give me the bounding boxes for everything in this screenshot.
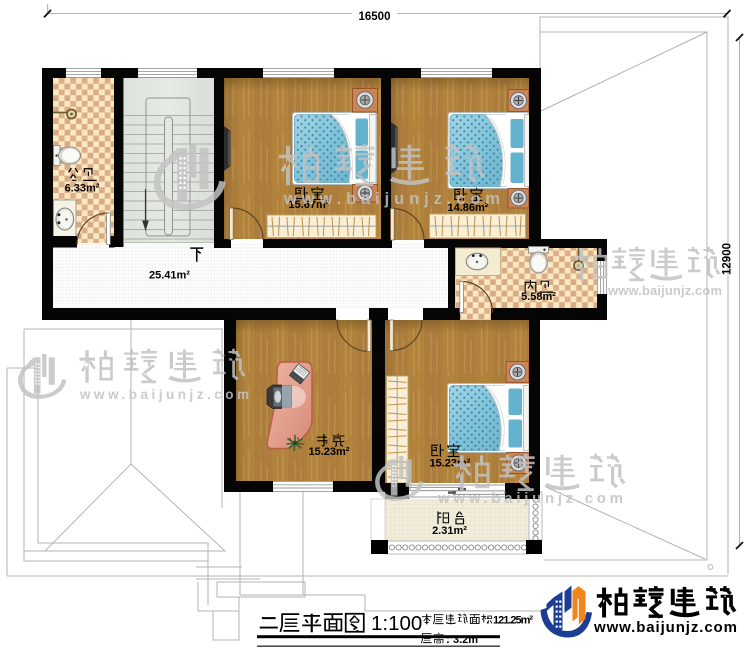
svg-text:www.baijunjz.com: www.baijunjz.com xyxy=(593,619,738,636)
svg-text:2.31m²: 2.31m² xyxy=(432,525,467,537)
svg-text:121.25m²: 121.25m² xyxy=(493,615,533,627)
svg-text:www.baijunjz.com: www.baijunjz.com xyxy=(607,283,722,298)
svg-text:1:100: 1:100 xyxy=(371,612,422,635)
svg-text::: : xyxy=(446,634,450,646)
svg-text:16500: 16500 xyxy=(359,11,391,23)
svg-text:14.86m²: 14.86m² xyxy=(448,202,489,214)
svg-text:3.2m: 3.2m xyxy=(453,634,478,646)
svg-text:6.33m²: 6.33m² xyxy=(65,183,100,195)
svg-text:15.23m²: 15.23m² xyxy=(309,446,350,458)
svg-text::: : xyxy=(486,615,490,627)
svg-text:12900: 12900 xyxy=(722,243,734,275)
svg-text:5.58m²: 5.58m² xyxy=(521,291,556,303)
svg-text:25.41m²: 25.41m² xyxy=(149,270,190,282)
